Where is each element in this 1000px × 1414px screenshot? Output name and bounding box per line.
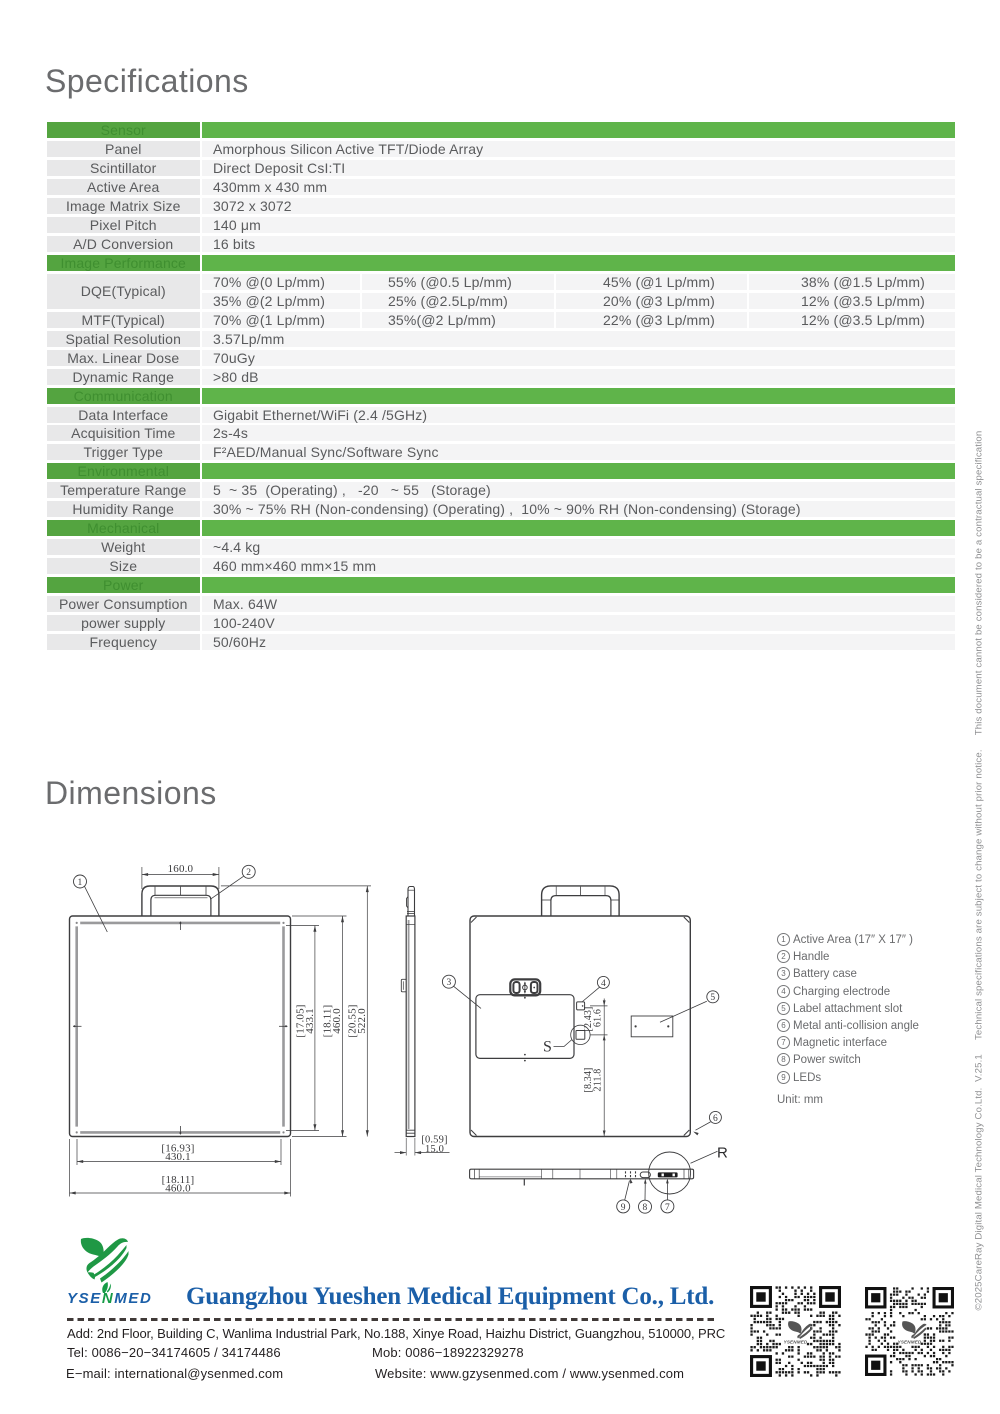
svg-text:5: 5	[710, 993, 715, 1003]
svg-text:8: 8	[643, 1203, 648, 1213]
svg-text:7: 7	[665, 1203, 670, 1213]
svg-text:YSENMED: YSENMED	[784, 1340, 808, 1345]
svg-text:61.6: 61.6	[593, 1009, 604, 1027]
svg-text:460.0: 460.0	[165, 1183, 191, 1195]
svg-text:3: 3	[446, 978, 451, 988]
svg-text:430.1: 430.1	[165, 1151, 191, 1163]
svg-text:160.0: 160.0	[168, 863, 194, 875]
svg-text:433.1: 433.1	[304, 1008, 316, 1034]
svg-text:R: R	[717, 1145, 728, 1162]
svg-text:522.0: 522.0	[356, 1008, 368, 1034]
svg-text:9: 9	[621, 1203, 626, 1213]
svg-text:6: 6	[713, 1114, 718, 1124]
svg-text:4: 4	[601, 979, 606, 989]
svg-text:2: 2	[246, 868, 251, 878]
svg-text:YSENMED: YSENMED	[898, 1340, 922, 1345]
svg-text:211.8: 211.8	[593, 1069, 604, 1092]
svg-text:S: S	[543, 1039, 552, 1056]
svg-text:460.0: 460.0	[331, 1008, 343, 1034]
svg-text:15.0: 15.0	[425, 1144, 444, 1155]
svg-text:1: 1	[78, 878, 83, 888]
